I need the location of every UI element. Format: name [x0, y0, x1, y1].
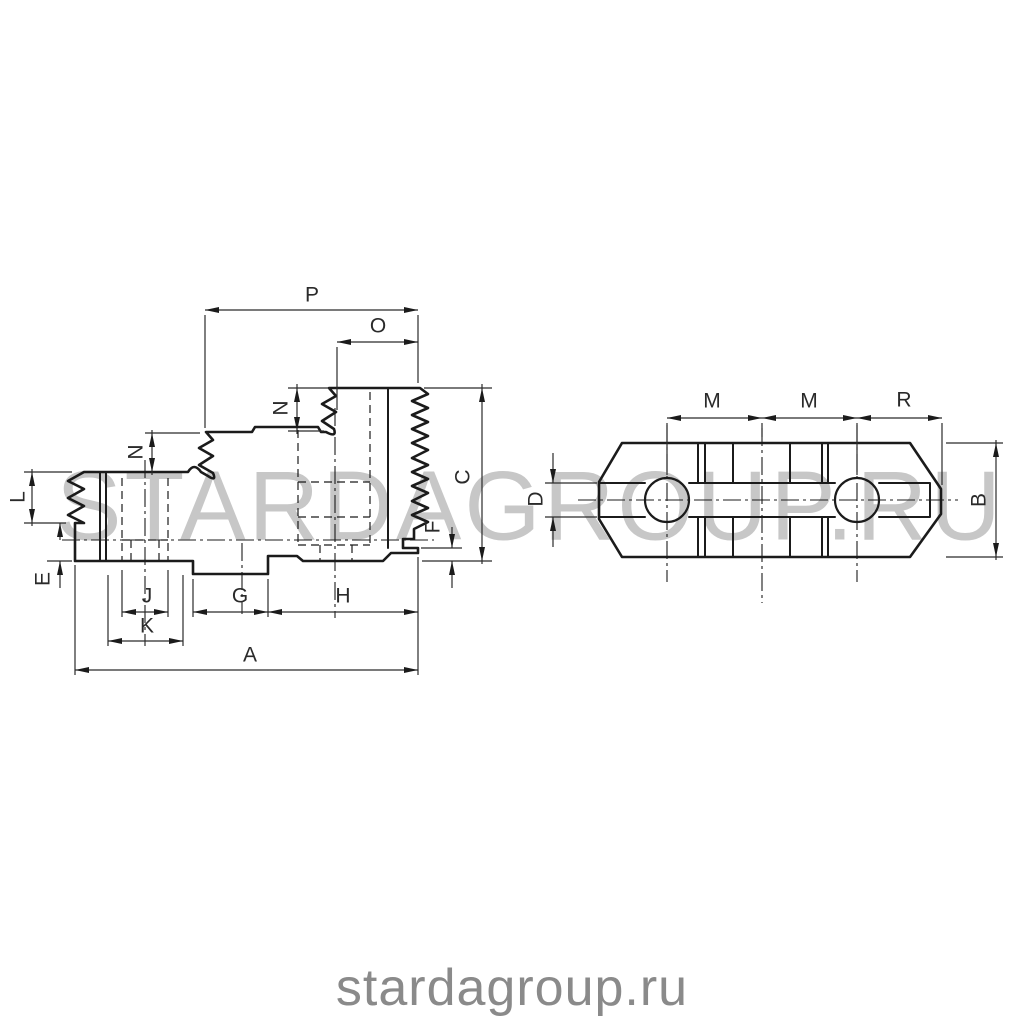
technical-drawing	[0, 0, 1024, 1024]
dim-label-o-1: O	[370, 316, 386, 337]
dim-label-j-8: J	[142, 586, 153, 607]
dim-label-m-13: M	[703, 391, 721, 412]
dim-label-l-4: L	[8, 491, 29, 503]
dim-label-e-5: E	[33, 572, 54, 586]
dim-label-p-0: P	[305, 285, 319, 306]
side-view-hidden-lines	[122, 392, 370, 560]
dim-label-d-16: D	[526, 491, 547, 506]
dim-label-n-3: N	[126, 444, 147, 459]
dim-label-a-12: A	[243, 645, 257, 666]
plan-view-center-lines	[578, 425, 958, 603]
drawing-canvas: STARDAGROUP.RU	[0, 0, 1024, 1024]
dim-label-r-15: R	[896, 390, 911, 411]
dim-label-f-7: F	[423, 521, 444, 534]
plan-view	[578, 425, 958, 603]
dim-label-k-9: K	[140, 616, 154, 637]
side-view-internal-lines	[100, 388, 388, 561]
side-view-center-lines	[62, 408, 434, 646]
dim-label-g-10: G	[232, 586, 248, 607]
dim-label-m-14: M	[800, 391, 818, 412]
dim-label-h-11: H	[335, 586, 350, 607]
dim-label-n-2: N	[271, 400, 292, 415]
dimension-lines	[24, 310, 1003, 675]
side-view	[62, 388, 434, 646]
footer-site-text: stardagroup.ru	[336, 958, 688, 1018]
dim-label-c-6: C	[453, 469, 474, 484]
dim-label-b-17: B	[969, 493, 990, 507]
dimension-arrowheads	[29, 307, 999, 673]
